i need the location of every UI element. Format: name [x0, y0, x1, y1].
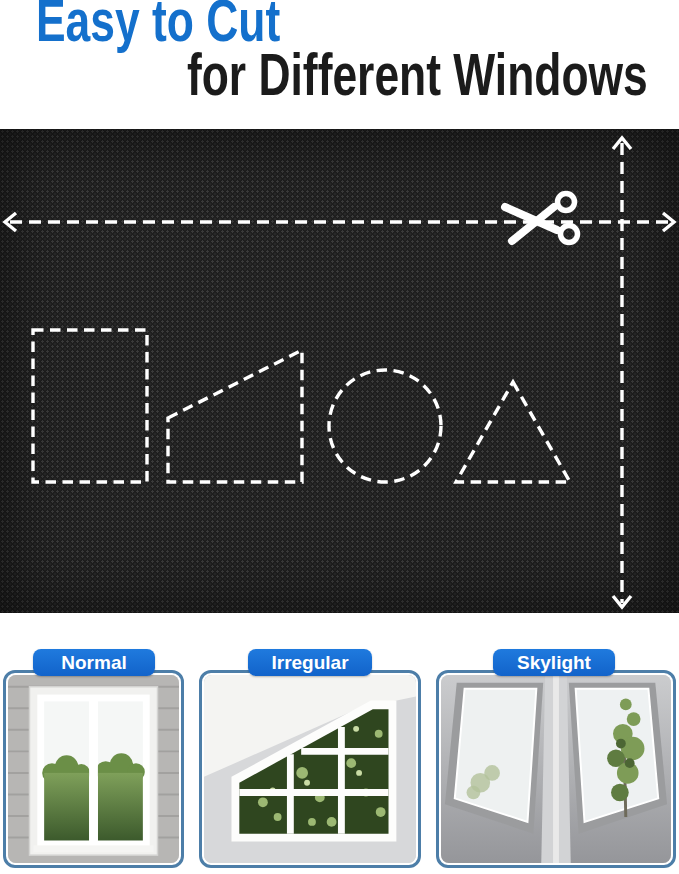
fabric-swatch: [0, 129, 679, 613]
normal-window-photo: [8, 675, 179, 863]
label-skylight: Skylight: [493, 649, 615, 676]
irregular-window-photo: [204, 675, 416, 863]
label-normal: Normal: [33, 649, 155, 676]
window-card-normal: [3, 670, 184, 868]
cut-shape-rectangle: [33, 330, 147, 482]
cutting-guides: [0, 129, 679, 613]
cut-shape-circle: [329, 370, 441, 482]
page-title-line2: for Different Windows: [187, 44, 648, 106]
window-card-irregular: [199, 670, 421, 868]
cut-shape-trapezoid: [168, 350, 302, 482]
cut-shape-triangle: [456, 382, 570, 482]
scissors-icon: [505, 194, 578, 243]
label-irregular: Irregular: [248, 649, 372, 676]
window-card-skylight: [436, 670, 676, 868]
product-infographic: Easy to Cut for Different Windows: [0, 0, 679, 874]
skylight-window-photo: [441, 675, 671, 863]
vertical-cut-line: [613, 138, 631, 607]
